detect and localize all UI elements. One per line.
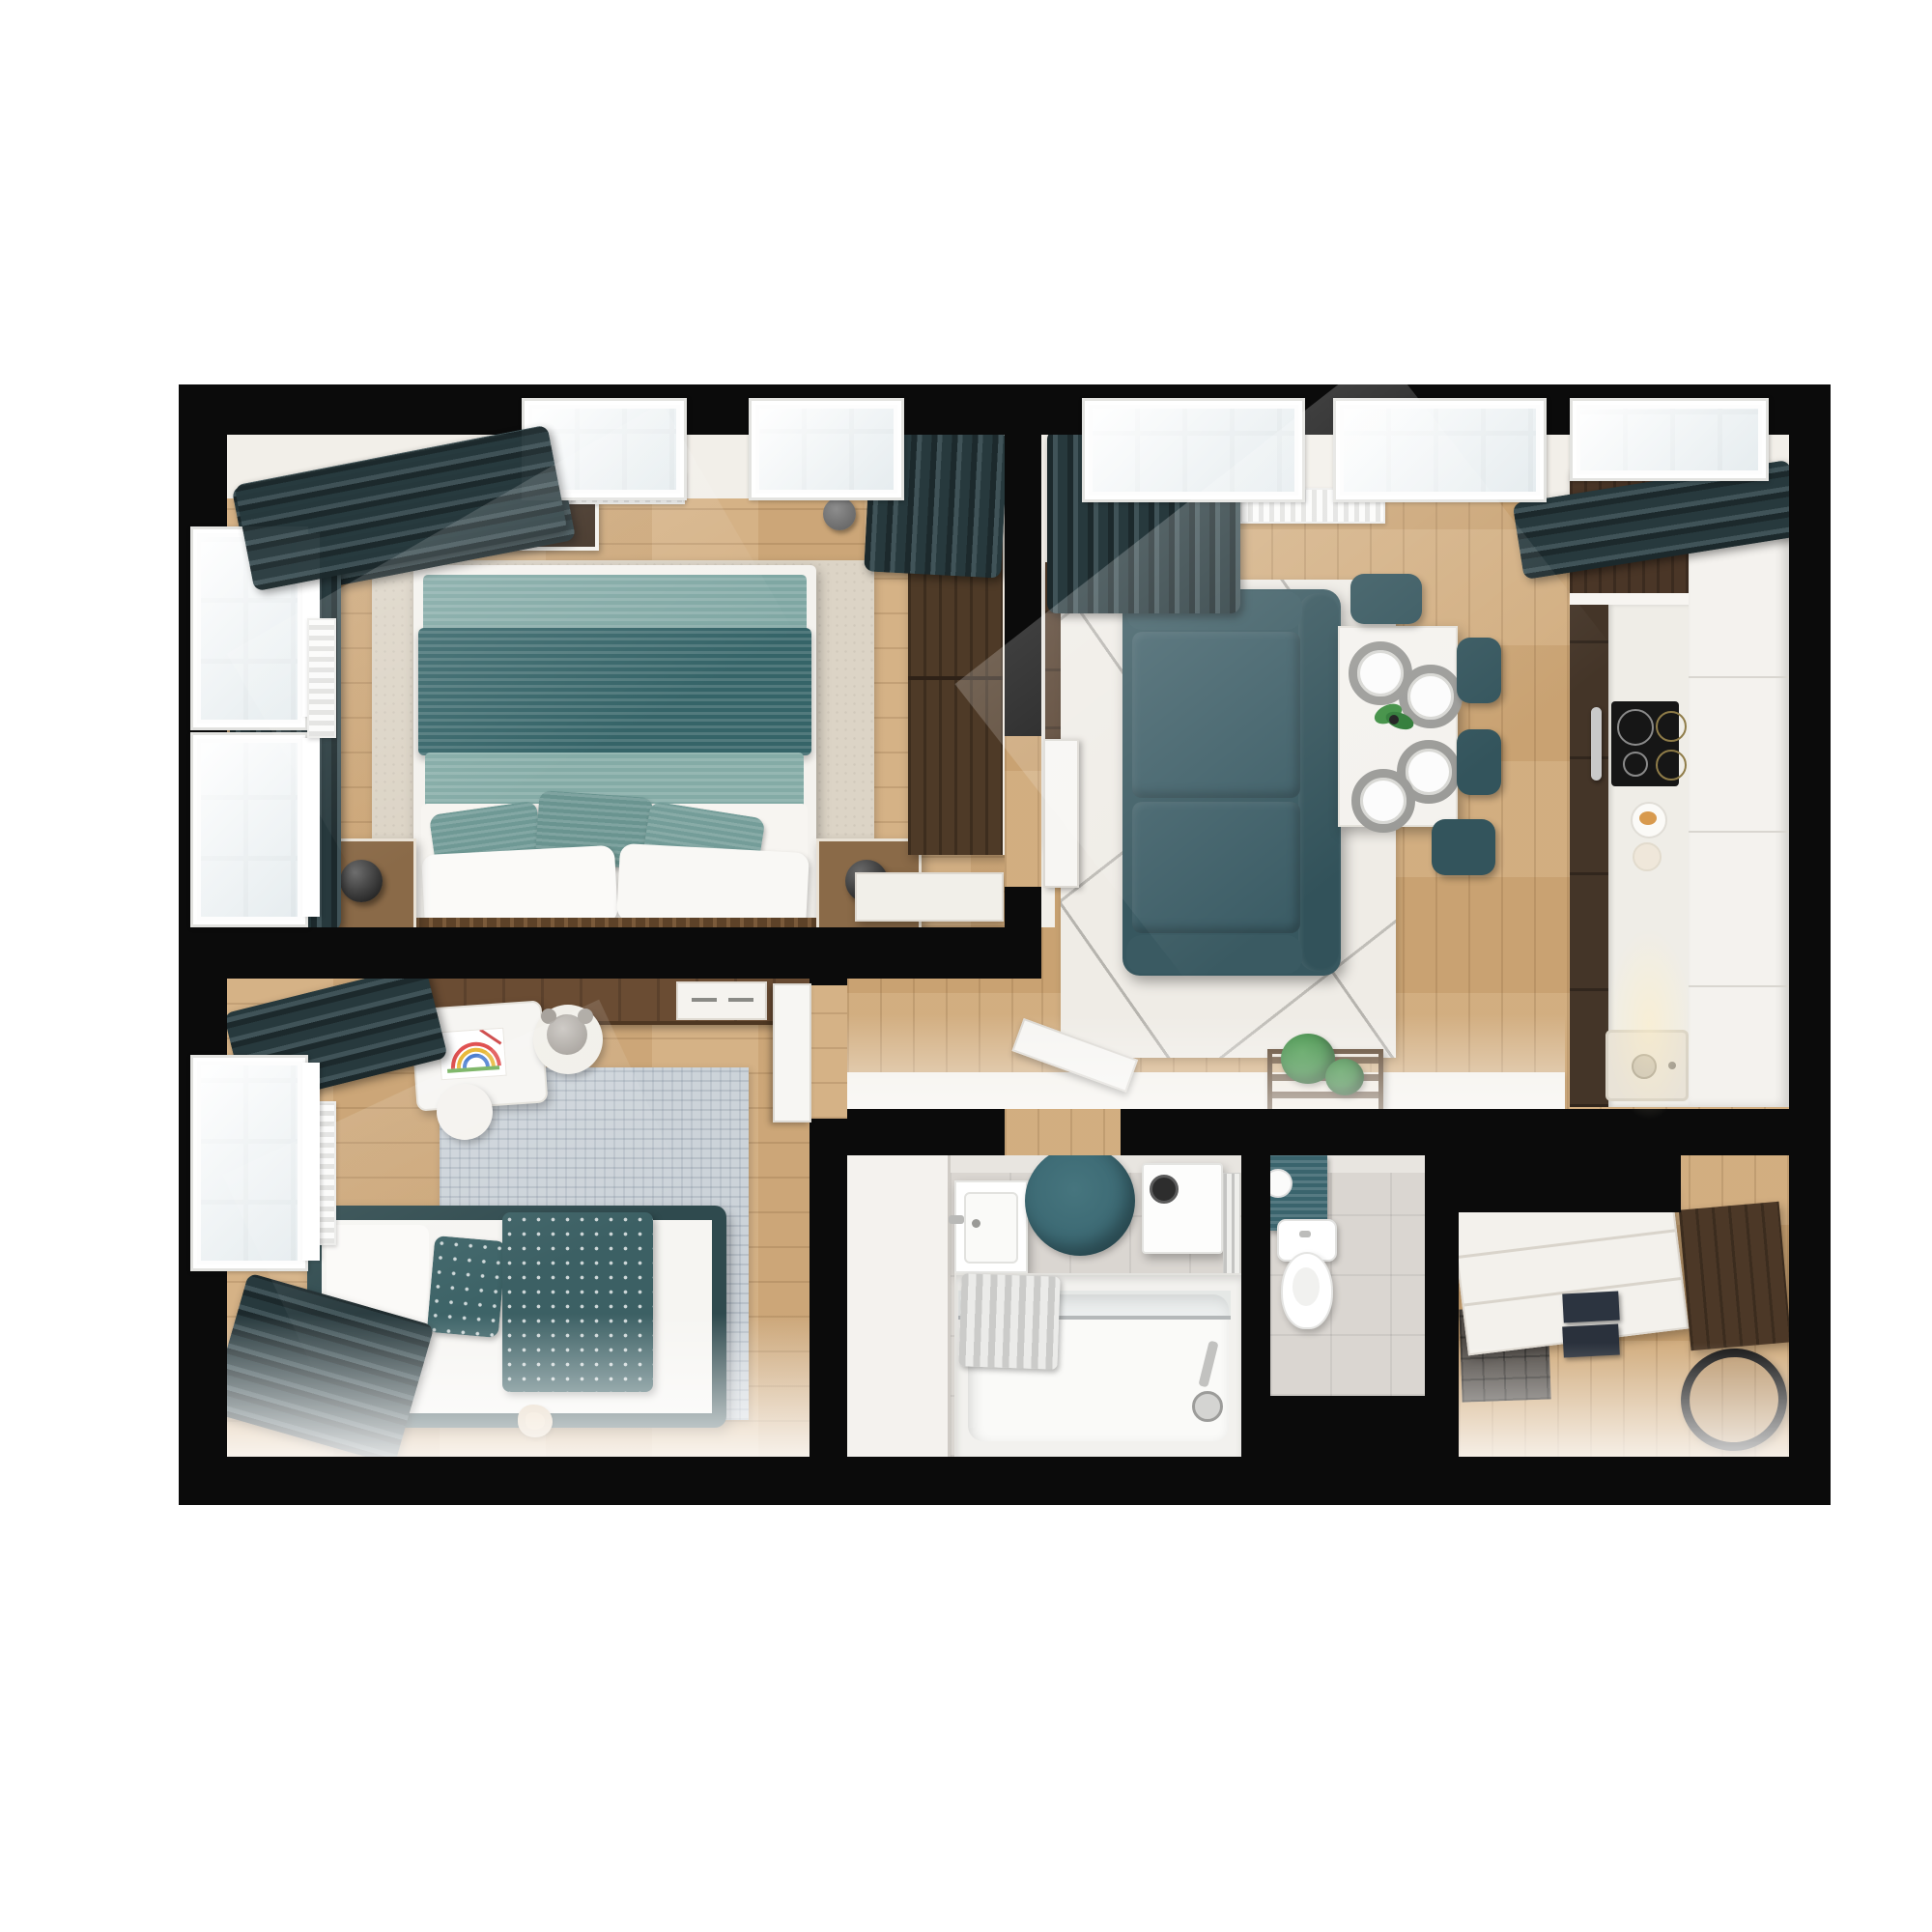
kitchen-side-plate (1633, 842, 1662, 871)
hall-south-wall-face (847, 1072, 1565, 1109)
bedroom-stool (823, 497, 856, 530)
wall-bath-wc-divider (1241, 1155, 1270, 1457)
vestibule-floor (847, 1155, 950, 1457)
kids-stool (437, 1084, 493, 1140)
table-plant (1372, 701, 1414, 740)
place-setting-4 (1351, 769, 1415, 833)
kids-rainbow-drawing (438, 1028, 506, 1081)
kids-floor-toy (518, 1405, 553, 1437)
bedroom-door-leaf (1043, 739, 1079, 888)
dining-chair-east-2 (1457, 729, 1501, 795)
bathroom-vestibule-divider (948, 1155, 951, 1457)
wall-hall-south-left (847, 1109, 1005, 1155)
wall-bedroom-south (227, 927, 1041, 979)
kitchen-base-cabinet-fronts (1570, 605, 1608, 1107)
sofa-seat-cushion-1 (1132, 632, 1300, 798)
dining-chair-south (1432, 819, 1495, 875)
oven-handle (1591, 707, 1602, 781)
living-window-top-2 (1333, 398, 1547, 502)
bedroom-left-radiator (307, 618, 336, 738)
bathroom-round-rug (1025, 1146, 1135, 1256)
toilet-flush-button (1299, 1231, 1311, 1237)
bathroom-sink-cabinet (954, 1180, 1028, 1273)
kids-bed-dotted-pillow (427, 1236, 506, 1338)
kids-bed-dotted-duvet (502, 1212, 653, 1392)
entry-wardrobe (1679, 1202, 1791, 1351)
dining-chair-north (1350, 574, 1422, 624)
kids-desk-drawer-unit (676, 981, 767, 1020)
wall-wc-entry-divider (1425, 1155, 1459, 1457)
bathroom-door-opening (1005, 1109, 1121, 1155)
sofa-seat-cushion-2 (1132, 802, 1300, 933)
entry-storage-box-1 (1562, 1292, 1619, 1323)
bedroom-window-top-2 (749, 398, 904, 500)
dining-chair-east-1 (1457, 638, 1501, 703)
wall-bottom (179, 1457, 1831, 1505)
wall-bedroom-living-upper (1005, 435, 1041, 736)
sofa-armrest-bottom (1126, 935, 1302, 974)
kitchen-window-top (1570, 398, 1769, 481)
kids-window-left (190, 1055, 308, 1271)
kitchen-upper-cabinet-edge (1570, 593, 1689, 605)
bedroom-console (855, 872, 1004, 922)
wall-hall-south-right (1121, 1109, 1789, 1155)
plant-stand-plant-small (1325, 1059, 1364, 1095)
kids-door-opening (810, 985, 847, 1119)
bedroom-window-left-2 (190, 732, 308, 927)
bedroom-window-sill-2 (302, 738, 320, 917)
shower-head (1192, 1391, 1223, 1422)
toilet-bowl (1281, 1252, 1333, 1329)
sofa (1122, 589, 1341, 976)
living-window-top-1 (1082, 398, 1305, 502)
entry-storage-box-2 (1562, 1324, 1620, 1358)
kitchen-cooktop (1611, 701, 1679, 786)
kids-window-sill (302, 1063, 320, 1261)
kids-door-leaf (773, 983, 811, 1122)
washing-machine (1142, 1163, 1223, 1254)
wall-right (1789, 384, 1831, 1505)
wall-entry-north-block (1459, 1155, 1681, 1212)
kitchen-sink (1605, 1030, 1689, 1101)
bedroom-door-opening (1005, 736, 1041, 887)
nightstand-left-lamp (340, 860, 383, 902)
kids-chair-with-teddy (533, 1005, 603, 1074)
kitchen-breakfast-plate (1631, 802, 1667, 838)
bed-blanket-light-top (423, 575, 807, 635)
bathtub-towels (958, 1273, 1060, 1370)
bed-blanket-dark-fold (418, 628, 811, 755)
floor-plan-render (0, 0, 1932, 1932)
kitchen-tall-cabinets (1689, 469, 1789, 1107)
sofa-backrest (1298, 593, 1339, 972)
bathroom-towel-rail (1223, 1173, 1240, 1287)
bedroom-wardrobe-divider (908, 676, 1003, 680)
wall-wc-south (1270, 1396, 1425, 1457)
